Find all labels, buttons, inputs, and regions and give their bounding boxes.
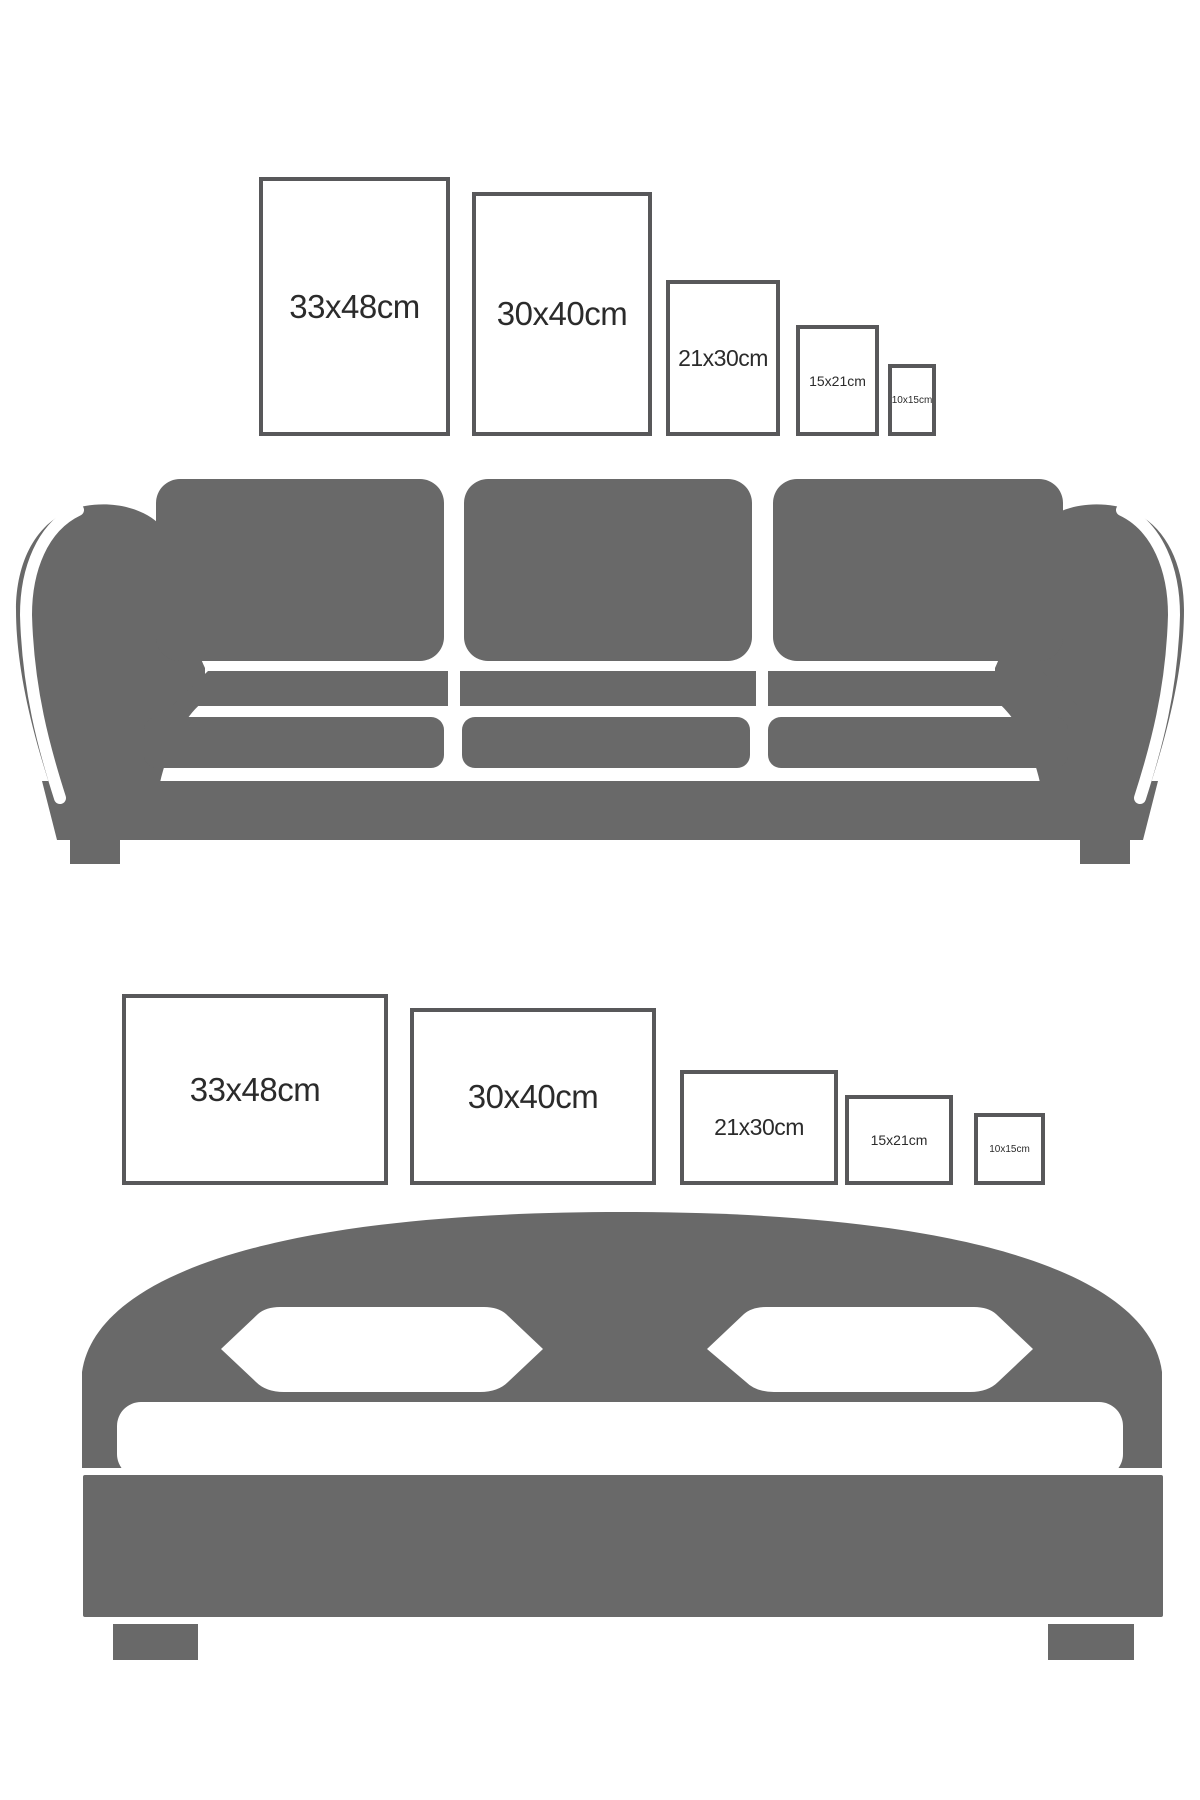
size-label: 15x21cm: [809, 373, 866, 389]
bed-pillow: [707, 1307, 1033, 1392]
size-frame-33x48-portrait: 33x48cm: [259, 177, 450, 436]
sofa-back-cushion: [464, 479, 752, 661]
size-frame-33x48-landscape: 33x48cm: [122, 994, 388, 1185]
size-label: 21x30cm: [678, 345, 768, 372]
sofa-illustration: [0, 406, 1200, 868]
size-label: 30x40cm: [468, 1078, 598, 1116]
sofa-seat-cushion: [144, 717, 444, 768]
size-frame-10x15-landscape: 10x15cm: [974, 1113, 1045, 1185]
size-frame-30x40-landscape: 30x40cm: [410, 1008, 656, 1185]
size-label: 30x40cm: [497, 295, 627, 333]
sofa-back-cushion: [156, 479, 444, 661]
bed-illustration: [0, 1196, 1200, 1666]
size-label: 33x48cm: [190, 1071, 320, 1109]
poster-size-guide: 33x48cm 30x40cm 21x30cm 15x21cm 10x15cm: [0, 0, 1200, 1800]
size-label: 10x15cm: [892, 395, 933, 406]
bed-mattress: [117, 1402, 1123, 1478]
size-frame-15x21-landscape: 15x21cm: [845, 1095, 953, 1185]
sofa-seat-cushion: [768, 717, 1068, 768]
bed-leg: [113, 1624, 198, 1660]
size-label: 10x15cm: [989, 1144, 1030, 1155]
size-label: 15x21cm: [871, 1132, 928, 1148]
sofa-seat-cushion: [462, 717, 750, 768]
bed-leg: [1048, 1624, 1134, 1660]
size-frame-30x40-portrait: 30x40cm: [472, 192, 652, 436]
bed-pillow: [221, 1307, 543, 1392]
size-label: 33x48cm: [289, 288, 419, 326]
size-label: 21x30cm: [714, 1114, 804, 1141]
sofa-back-cushion: [773, 479, 1063, 661]
size-frame-21x30-landscape: 21x30cm: [680, 1070, 838, 1185]
bed-base: [83, 1475, 1163, 1617]
